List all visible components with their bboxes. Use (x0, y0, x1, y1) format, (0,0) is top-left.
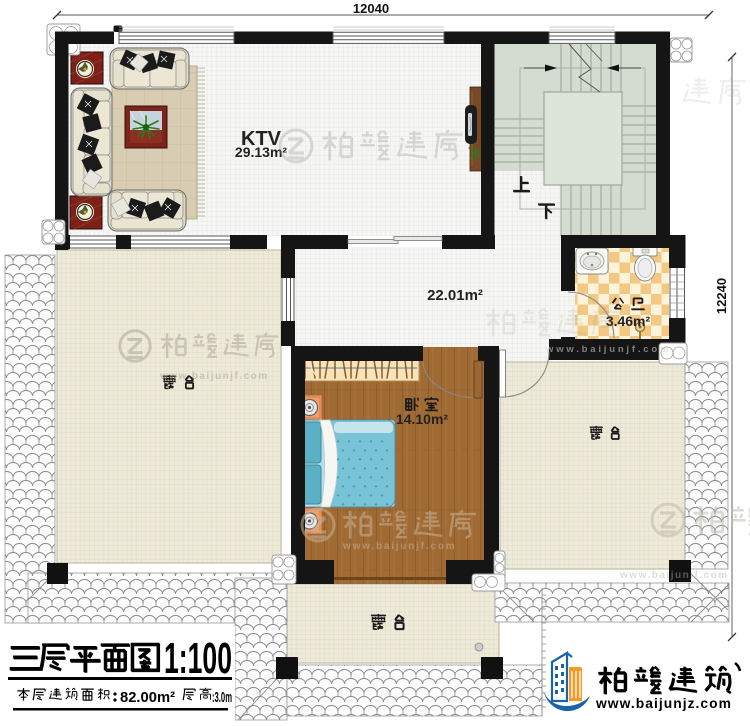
svg-text::3.0m: :3.0m (212, 689, 232, 706)
svg-text:12040: 12040 (353, 1, 389, 16)
svg-text:82.00m²: 82.00m² (120, 689, 175, 706)
svg-text:12240: 12240 (714, 278, 729, 314)
svg-text:14.10m²: 14.10m² (396, 411, 448, 427)
svg-text:www.baijunjf.com: www.baijunjf.com (545, 344, 671, 355)
svg-text:www.baijunjf.com: www.baijunjf.com (619, 570, 729, 581)
svg-text:www.baijunjf.com: www.baijunjf.com (159, 371, 269, 382)
svg-text:1:100: 1:100 (164, 634, 232, 683)
svg-text:22.01m²: 22.01m² (427, 287, 483, 304)
svg-text:www.baijunjz.com: www.baijunjz.com (595, 696, 732, 711)
svg-text:www.baijunjf.com: www.baijunjf.com (342, 541, 456, 552)
